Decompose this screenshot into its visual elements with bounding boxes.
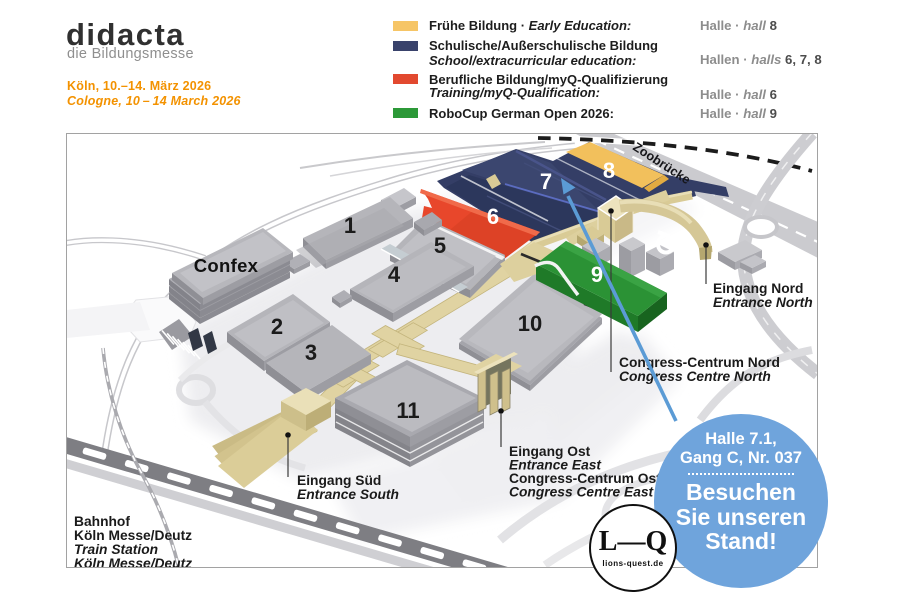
svg-text:Eingang Nord: Eingang Nord	[713, 281, 803, 296]
svg-text:6: 6	[487, 204, 499, 229]
svg-text:Köln Messe/Deutz: Köln Messe/Deutz	[74, 528, 192, 543]
svg-text:1: 1	[344, 213, 356, 238]
svg-text:10: 10	[518, 311, 542, 336]
svg-text:Bahnhof: Bahnhof	[74, 514, 130, 529]
svg-text:4: 4	[388, 262, 401, 287]
svg-text:Köln Messe/Deutz: Köln Messe/Deutz	[74, 556, 192, 571]
svg-text:11: 11	[396, 398, 419, 423]
svg-text:5: 5	[434, 233, 446, 258]
svg-text:3: 3	[305, 340, 317, 365]
svg-text:7: 7	[540, 169, 552, 194]
svg-text:Confex: Confex	[194, 255, 259, 276]
svg-text:Eingang Süd: Eingang Süd	[297, 473, 381, 488]
svg-text:Congress Centre North: Congress Centre North	[619, 369, 771, 384]
svg-text:Entrance South: Entrance South	[297, 487, 399, 502]
svg-text:Congress-Centrum Nord: Congress-Centrum Nord	[619, 355, 780, 370]
svg-text:Train Station: Train Station	[74, 542, 158, 557]
svg-text:Entrance North: Entrance North	[713, 295, 813, 310]
svg-text:2: 2	[271, 314, 283, 339]
svg-text:8: 8	[603, 158, 615, 183]
svg-text:Congress Centre East: Congress Centre East	[509, 485, 655, 500]
